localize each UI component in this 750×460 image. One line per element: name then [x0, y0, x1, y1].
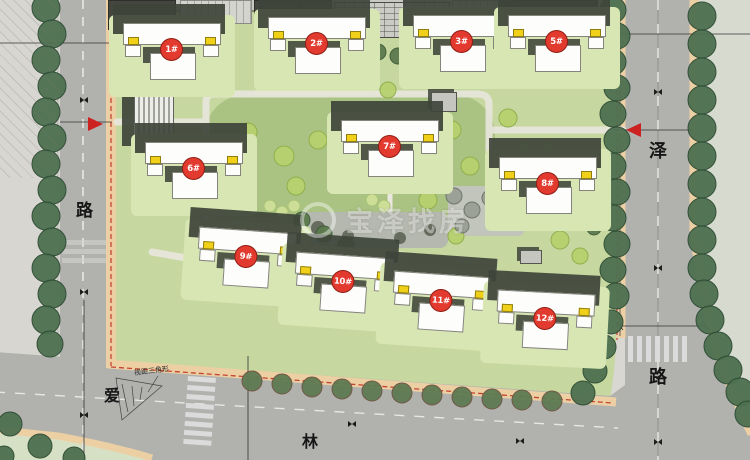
watermark-logo-icon: [300, 202, 336, 238]
building-marker: 6#: [182, 157, 205, 180]
building-marker: 7#: [378, 135, 401, 158]
unit-number-badge: [300, 266, 312, 275]
unit-number-badge: [513, 29, 524, 37]
hatch-corner: [0, 0, 58, 178]
building-5: 5#: [498, 5, 616, 89]
watermark-text: 宝泽找房: [346, 200, 470, 239]
unit-number-badge: [398, 285, 410, 294]
building-marker: 1#: [160, 38, 183, 61]
unit-number-badge: [128, 37, 139, 45]
road-name-south-right: 林: [302, 428, 318, 452]
unit-number-badge: [578, 308, 589, 317]
unit-number-badge: [346, 134, 357, 142]
unit-number-badge: [150, 156, 161, 164]
unit-number-badge: [273, 31, 284, 39]
west-crosswalk: [62, 240, 106, 263]
road-name-west: 路: [76, 196, 93, 221]
unit-number-badge: [350, 31, 361, 39]
building-6: 6#: [135, 132, 253, 216]
building-marker: 2#: [305, 32, 328, 55]
unit-number-badge: [418, 29, 429, 37]
unit-number-badge: [423, 134, 434, 142]
building-marker: 5#: [545, 30, 568, 53]
building-marker: 3#: [450, 30, 473, 53]
unit-number-badge: [227, 156, 238, 164]
unit-number-badge: [502, 304, 513, 313]
road-name-east-bottom: 路: [649, 363, 667, 389]
watermark: 宝泽找房: [300, 200, 470, 239]
unit-number-badge: [504, 171, 515, 179]
unit-number-badge: [203, 241, 215, 250]
site-plan-canvas: 1# 2# 3# 5# 6# 7# 8#: [0, 0, 750, 460]
building-2: 2#: [258, 7, 376, 91]
building-12: 12#: [484, 279, 606, 369]
service-shed: [520, 250, 542, 264]
building-1: 1#: [113, 13, 231, 97]
road-name-south-left: 爱: [104, 382, 120, 406]
road-name-east-top: 泽: [649, 137, 667, 163]
building-8: 8#: [489, 147, 607, 231]
building-marker: 8#: [536, 172, 559, 195]
building-7: 7#: [331, 110, 449, 194]
unit-number-badge: [581, 171, 592, 179]
unit-number-badge: [590, 29, 601, 37]
unit-number-badge: [205, 37, 216, 45]
